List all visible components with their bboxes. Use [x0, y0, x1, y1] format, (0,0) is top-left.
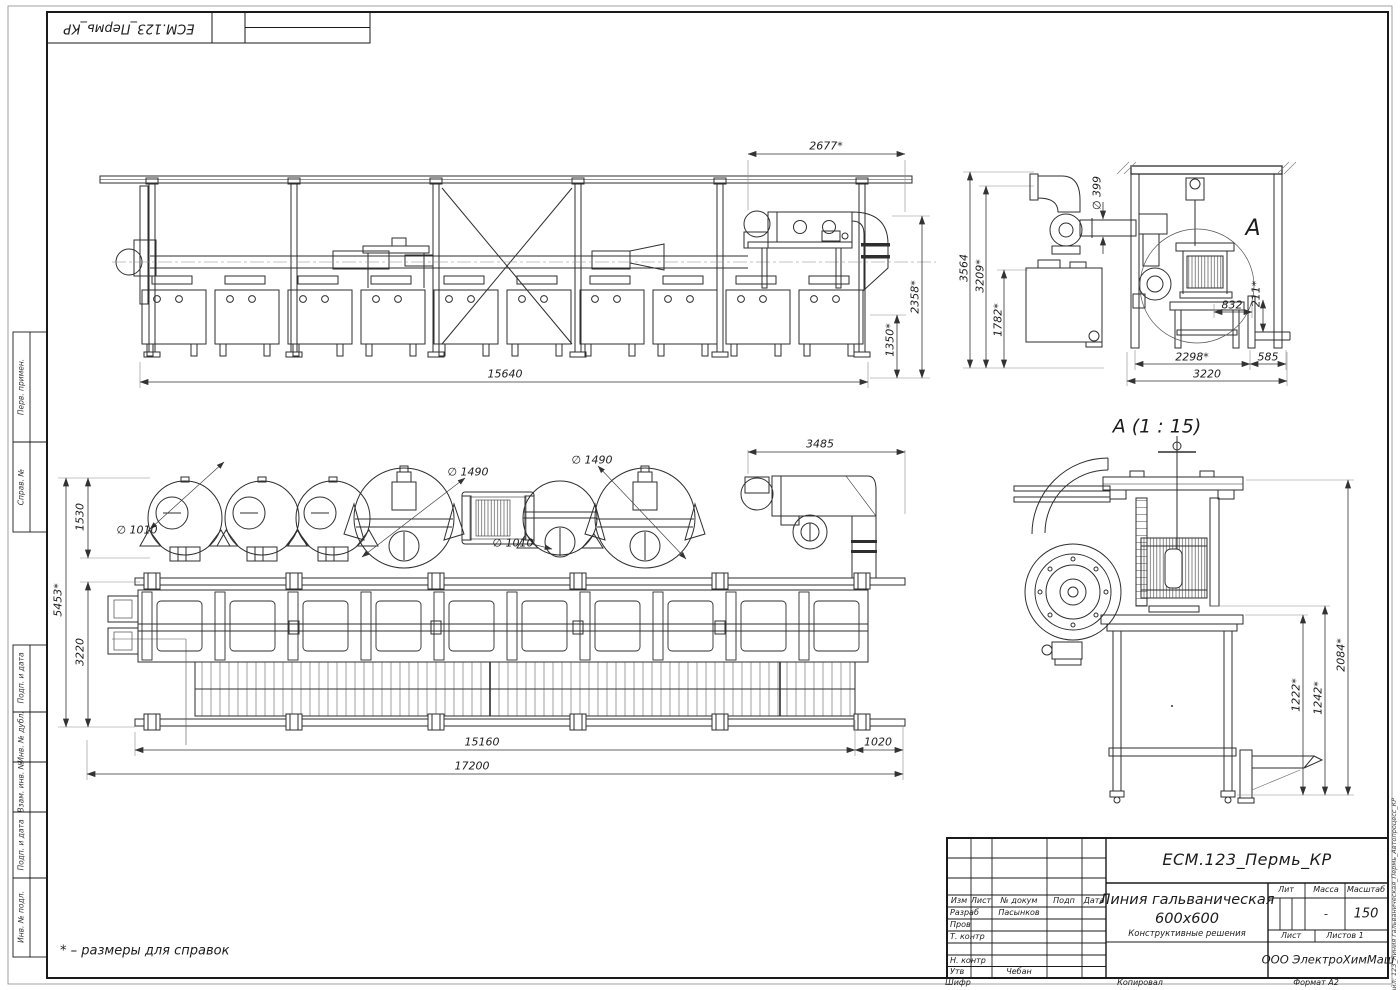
- titleblock-hdr-massa: Масса: [1313, 886, 1339, 894]
- titleblock-hdr-lit: Лит: [1278, 886, 1294, 894]
- titleblock-company: ООО ЭлектроХимМаш: [1262, 954, 1395, 966]
- view-plan: [58, 450, 905, 780]
- dim-plan-1530: 1530: [75, 503, 86, 531]
- dim-side-dia399: ∅ 399: [1092, 176, 1103, 210]
- dim-plan-dia1010-1: ∅ 1010: [116, 525, 157, 536]
- dim-plan-dia1490-2: ∅ 1490: [571, 455, 612, 466]
- titleblock-utv-name: Чебан: [1006, 968, 1031, 976]
- titleblock-name-line1: Линия гальваническая: [1099, 893, 1274, 908]
- titleblock-list-label: Лист: [1281, 932, 1301, 940]
- dim-side-211: 211*: [1251, 281, 1262, 308]
- dim-front-2677: 2677*: [809, 141, 843, 152]
- detail-callout-a: А: [1245, 218, 1260, 240]
- dim-side-3209: 3209*: [975, 259, 986, 293]
- titleblock-row-nkontr: Н. контр: [950, 957, 986, 965]
- view-side-elevation: [963, 162, 1296, 386]
- titleblock-hdr-izm: Изм: [951, 897, 967, 905]
- titleblock-row-prov: Пров: [950, 921, 971, 929]
- titleblock-hdr-list: Лист: [971, 897, 991, 905]
- dim-plan-dia1490-1: ∅ 1490: [447, 467, 488, 478]
- margin-label-perv-primen: Перв. примен.: [17, 359, 25, 415]
- titleblock-hdr-data: Дата: [1084, 897, 1105, 905]
- dim-plan-5453: 5453*: [53, 583, 64, 617]
- dim-front-15640: 15640: [488, 369, 523, 380]
- view-detail-a: [1014, 436, 1354, 803]
- titleblock-row-tkontr: Т. контр: [950, 933, 985, 941]
- top-stamp-designation: ЕСМ.123_Пермь_КР: [63, 21, 194, 34]
- dim-detail-1242: 1242*: [1313, 681, 1324, 715]
- titleblock-row-utv: Утв: [950, 968, 964, 976]
- dim-plan-15160: 15160: [465, 737, 500, 748]
- drawing-sheet: ЕСМ.123_Пермь_КР Перв. примен. Справ. № …: [0, 0, 1400, 990]
- margin-label-podp-data-1: Подп. и дата: [17, 652, 25, 703]
- margin-label-podp-data-2: Подп. и дата: [17, 819, 25, 870]
- reference-note: * – размеры для справок: [60, 945, 229, 958]
- titleblock-hdr-masshtab: Масштаб: [1347, 886, 1385, 894]
- dim-side-3220: 3220: [1193, 369, 1221, 380]
- footer-kopiroval: Копировал: [1117, 979, 1163, 987]
- titleblock-hdr-podp: Подп: [1053, 897, 1075, 905]
- titleblock-designation: ЕСМ.123_Пермь_КР: [1162, 852, 1331, 868]
- dim-plan-3220: 3220: [75, 638, 86, 666]
- titleblock-massa-value: -: [1324, 908, 1328, 920]
- dim-plan-dia1010-2: ∅ 1010: [492, 538, 533, 549]
- dim-side-832: 832: [1222, 300, 1243, 311]
- titleblock-doc-type: Конструктивные решения: [1128, 930, 1246, 939]
- margin-label-vzam-inv: Взам. инв. №: [17, 762, 25, 813]
- dim-side-2298: 2298*: [1175, 352, 1209, 363]
- detail-title: А (1 : 15): [1113, 418, 1202, 437]
- dim-side-3564: 3564: [959, 254, 970, 282]
- titleblock-razrab-name: Пасынков: [998, 909, 1039, 917]
- dim-detail-2084: 2084*: [1336, 638, 1347, 672]
- dim-detail-1222: 1222*: [1291, 678, 1302, 712]
- titleblock-listov-label: Листов 1: [1326, 932, 1364, 940]
- dim-front-1350: 1350*: [885, 323, 896, 357]
- dim-side-585: 585: [1258, 352, 1279, 363]
- drawing-linework: [0, 0, 1400, 990]
- dim-plan-3485: 3485: [806, 439, 834, 450]
- dim-plan-17200: 17200: [455, 761, 490, 772]
- footer-format: Формат А2: [1293, 979, 1339, 987]
- dim-side-1782: 1782*: [993, 303, 1004, 337]
- footer-shifr: Шифр: [945, 979, 971, 987]
- margin-label-inv-dubl: Инв. № дубл.: [17, 711, 25, 762]
- titleblock-row-razrab: Разраб: [950, 909, 979, 917]
- margin-label-inv-podl: Инв. № подл.: [17, 891, 25, 943]
- dim-plan-1020: 1020: [864, 737, 892, 748]
- margin-label-sprav-no: Справ. №: [17, 469, 25, 506]
- titleblock-masshtab-value: 150: [1354, 908, 1379, 921]
- view-front-elevation: [100, 154, 936, 388]
- titleblock-name-line2: 600х600: [1155, 912, 1219, 927]
- dim-front-2358: 2358*: [910, 280, 921, 314]
- titleblock-hdr-docnum: № докум: [1001, 897, 1038, 905]
